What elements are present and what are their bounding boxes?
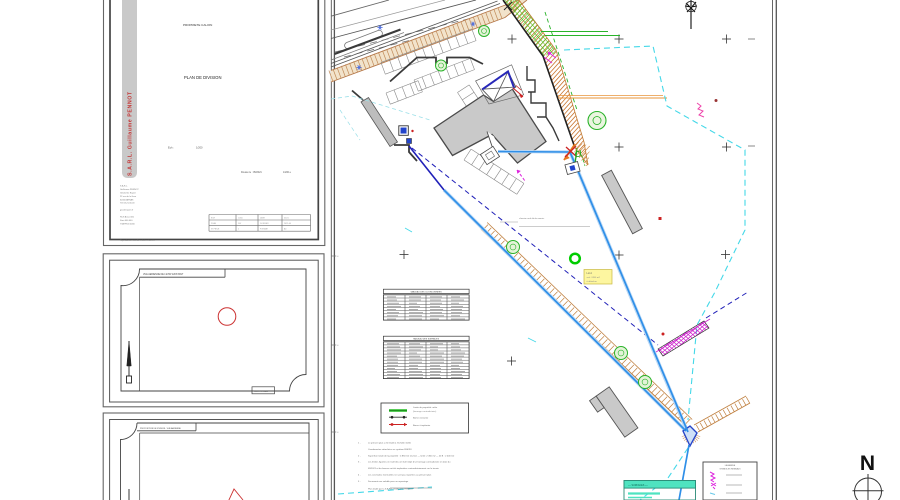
svg-text:4 -: 4 - bbox=[358, 475, 361, 477]
svg-text:N° PIECE: N° PIECE bbox=[211, 229, 220, 231]
svg-text:DATE: DATE bbox=[260, 217, 266, 220]
svg-text:(bornage contradictoire): (bornage contradictoire) bbox=[413, 410, 436, 413]
svg-text:Coordonnées rattachées au syst: Coordonnées rattachées au système RGF93 bbox=[368, 448, 412, 451]
svg-text:DOSSIER: DOSSIER bbox=[260, 223, 269, 225]
svg-text:Les servitudes éventuelles ne: Les servitudes éventuelles ne sont pas r… bbox=[368, 474, 432, 477]
svg-text:Limite de propriété créée: Limite de propriété créée bbox=[413, 406, 438, 409]
svg-text:1/200: 1/200 bbox=[196, 146, 203, 150]
svg-text:3 -: 3 - bbox=[358, 462, 361, 464]
svg-text:à détacher: à détacher bbox=[587, 280, 598, 283]
svg-text:50: 50 bbox=[337, 432, 339, 434]
svg-text:TABLEAU DES SURFACES: TABLEAU DES SURFACES bbox=[413, 338, 440, 341]
svg-text:50: 50 bbox=[337, 256, 339, 258]
svg-text:surf. 2450 m2: surf. 2450 m2 bbox=[587, 276, 601, 279]
svg-text:Reproduction interdite - droit: Reproduction interdite - droits réservés bbox=[120, 239, 154, 242]
svg-text:PLAN DE DIVISION: PLAN DE DIVISION bbox=[184, 75, 221, 80]
svg-text:VUE AERIENNE DE L’ETAT EXISTAN: VUE AERIENNE DE L’ETAT EXISTANT bbox=[143, 273, 184, 276]
svg-text:Siret 000 000: Siret 000 000 bbox=[120, 219, 133, 222]
svg-text:SYMBOLES RESEAUX: SYMBOLES RESEAUX bbox=[719, 467, 741, 470]
svg-text:1/200: 1/200 bbox=[238, 218, 243, 220]
svg-text:Guillaume PENNOT: Guillaume PENNOT bbox=[120, 189, 139, 191]
svg-text:Plan établi par la S.A.R.L. Gu: Plan établi par la S.A.R.L. Guillaume PE… bbox=[368, 488, 414, 491]
svg-text:Les limites figurées en trait: Les limites figurées en trait bleu ont f… bbox=[368, 461, 451, 464]
svg-text:1/200 e: 1/200 e bbox=[283, 171, 292, 174]
svg-text:N: N bbox=[860, 452, 875, 475]
svg-text:chemin rural dit du marais: chemin rural dit du marais bbox=[519, 217, 545, 220]
svg-text:TABLEAU DES COORDONNEES: TABLEAU DES COORDONNEES bbox=[410, 291, 442, 294]
svg-text:Tél 03.21.00.00: Tél 03.21.00.00 bbox=[120, 203, 135, 205]
svg-text:Ech :: Ech : bbox=[168, 146, 174, 150]
svg-text:GEOPORTAIL: GEOPORTAIL bbox=[254, 390, 269, 393]
svg-text:TVA FR00 0000: TVA FR00 0000 bbox=[120, 222, 135, 225]
svg-text:Lot A: Lot A bbox=[587, 272, 593, 275]
svg-text:1 -: 1 - bbox=[358, 443, 361, 445]
svg-text:S.A.R.L. Guillaume PENNOT: S.A.R.L. Guillaume PENNOT bbox=[128, 91, 134, 176]
svg-text:Le présent plan a été établi à: Le présent plan a été établi à l’échelle… bbox=[368, 442, 412, 445]
svg-text:S.A.R.L.: S.A.R.L. bbox=[120, 185, 128, 188]
svg-text:1: 1 bbox=[238, 229, 239, 231]
svg-text:FORMAT: FORMAT bbox=[260, 228, 269, 231]
svg-text:LEGENDE: LEGENDE bbox=[725, 465, 736, 467]
svg-text:RCS Arras 000: RCS Arras 000 bbox=[120, 216, 135, 219]
svg-text:5 -: 5 - bbox=[358, 481, 361, 483]
svg-text:PROPOSITION DE DIVISION - VUE: PROPOSITION DE DIVISION - VUE AERIENNE bbox=[140, 427, 181, 430]
svg-text:~~ SURFACES ~~: ~~ SURFACES ~~ bbox=[628, 484, 648, 487]
svg-text:Document non valable pour un a: Document non valable pour un arpentage bbox=[368, 480, 409, 483]
svg-text:50: 50 bbox=[337, 345, 339, 347]
svg-text:23 rue de la Gare: 23 rue de la Gare bbox=[120, 195, 137, 198]
svg-text:Borne existante: Borne existante bbox=[413, 417, 429, 420]
svg-text:PROPRIETE CALOIN: PROPRIETE CALOIN bbox=[183, 23, 212, 27]
svg-text:PLAN: PLAN bbox=[211, 222, 217, 225]
svg-text:05/2021 et les bornes ont été: 05/2021 et les bornes ont été implantées… bbox=[368, 467, 440, 470]
svg-text:Superficie totale de la propri: Superficie totale de la propriété : 4 85… bbox=[368, 454, 455, 457]
svg-text:A3: A3 bbox=[284, 228, 286, 231]
svg-text:Dressé le : 05/2021: Dressé le : 05/2021 bbox=[241, 171, 262, 174]
svg-text:Borne à implanter: Borne à implanter bbox=[413, 424, 431, 427]
svg-text:05/21: 05/21 bbox=[284, 218, 289, 220]
svg-text:62000 ARRAS: 62000 ARRAS bbox=[120, 198, 134, 201]
svg-text:2021-00: 2021-00 bbox=[284, 223, 291, 225]
svg-text:ECH: ECH bbox=[211, 218, 216, 220]
svg-text:2 -: 2 - bbox=[358, 455, 361, 457]
svg-text:Géomètre Expert: Géomètre Expert bbox=[120, 191, 136, 194]
svg-text:geo@expert.fr: geo@expert.fr bbox=[120, 209, 134, 212]
